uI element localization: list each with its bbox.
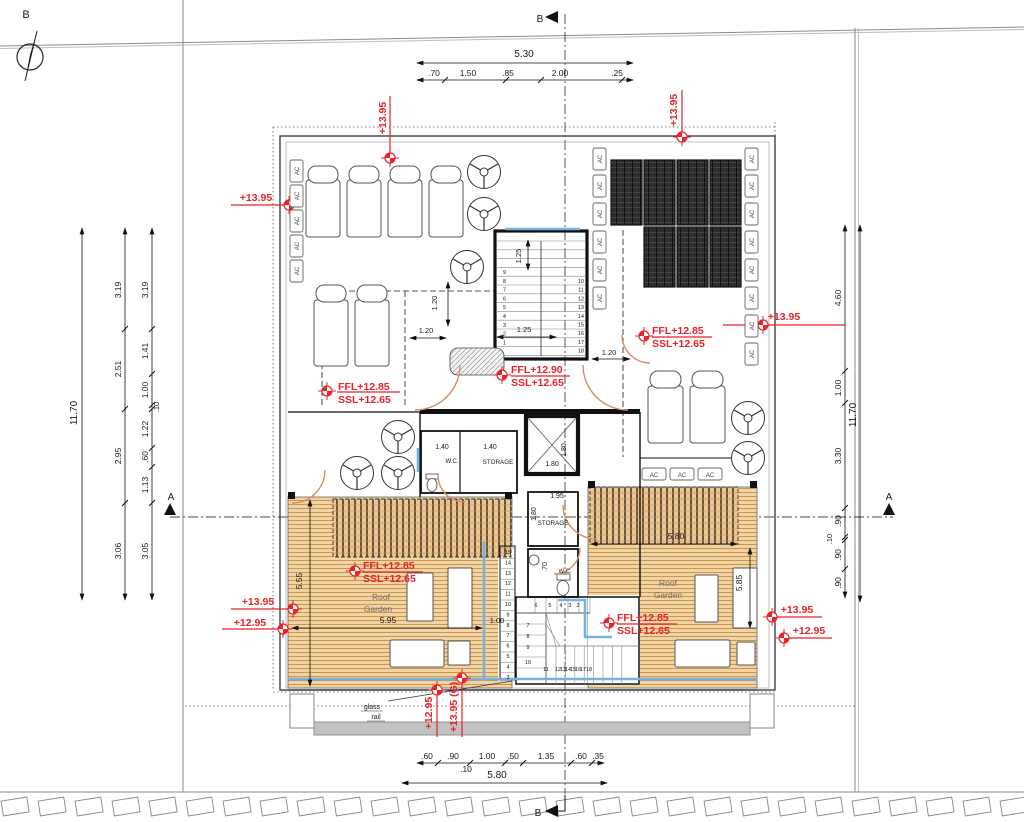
room-label: Roof (659, 578, 678, 588)
pavement-tile (260, 797, 288, 816)
dim-label: 5.55 (294, 572, 304, 589)
dim-label: 7 (507, 633, 510, 639)
dim-label: 1.25 (514, 249, 523, 264)
pavement-tile (38, 797, 66, 816)
dim-label: AC (750, 265, 756, 274)
room-label: Roof (372, 592, 391, 602)
level-marker-icon (775, 629, 793, 647)
level-annotation: SSL+12.65 (338, 394, 391, 406)
dim-label: 10 (505, 602, 511, 608)
lounger-pillow (692, 371, 723, 388)
dim-label: 12 (505, 581, 511, 587)
dim-label: AC (706, 473, 715, 479)
dim-label: 16 (578, 331, 584, 337)
level-annotation: +12.95 (793, 625, 826, 637)
dim-label: 3.05 (140, 542, 150, 559)
pavement-tile (482, 797, 510, 816)
dim-label: 5 (549, 603, 552, 609)
dim-label: AC (750, 349, 756, 358)
dim-label: 1.20 (430, 296, 439, 311)
pavement-tile (889, 797, 917, 816)
section-marker-label: A (886, 492, 893, 503)
level-annotation: +13.95 (668, 94, 680, 127)
side-table (737, 642, 755, 665)
dim-label: 1.25 (517, 325, 532, 334)
floor-plan-drawing: ACACACACACACACACACACACACACACACACACACACAC… (0, 0, 1024, 822)
level-marker-icon (318, 382, 336, 400)
dim-label: 10 (578, 279, 584, 285)
dim-label: AC (598, 181, 604, 190)
level-marker-icon (763, 608, 781, 626)
room-label: STORAGE (483, 459, 514, 466)
solar-panels (611, 160, 741, 287)
dim-label: 1.80 (545, 461, 559, 468)
pavement-tile (630, 797, 658, 816)
pavement-tile (741, 797, 769, 816)
north-label: B (22, 9, 29, 21)
dim-label: 1.13 (140, 476, 150, 493)
dim-label: 3 (569, 603, 572, 609)
dim-label: 3 (503, 323, 506, 329)
stair-tread (546, 624, 560, 646)
dim-label: 6 (507, 644, 510, 650)
garden-cabinet (448, 568, 472, 628)
garden-sofa (675, 640, 730, 667)
pavement-tile (556, 797, 584, 816)
pavement-tile (815, 797, 843, 816)
dim-label: 12 (578, 296, 584, 302)
dim-label: 2.95 (113, 447, 123, 464)
dim-label: .10 (825, 534, 834, 544)
lounger-pillow (308, 166, 338, 183)
glass-rail-label: glass (364, 704, 381, 711)
dim-label: 3.06 (113, 542, 123, 559)
dim-label: AC (650, 473, 659, 479)
level-annotation: FFL+12.90 (511, 364, 563, 376)
dim-label: 18 (586, 667, 592, 673)
level-annotation: +13.95 (377, 102, 389, 135)
lounger-pillow (316, 285, 346, 302)
bench-seat (450, 348, 504, 375)
sun-lounger (388, 180, 422, 237)
dim-label: .90 (833, 577, 843, 589)
section-marker-label: B (537, 14, 544, 25)
level-annotation: SSL+12.65 (652, 338, 705, 350)
dim-label: AC (598, 293, 604, 302)
level-annotation: FFL+12.85 (363, 560, 415, 572)
dim-label: 1.80 (531, 507, 538, 521)
room-label: Garden (654, 590, 683, 600)
pavement-tile (334, 797, 362, 816)
dim-label: AC (295, 241, 301, 250)
dim-label: 14 (578, 314, 584, 320)
lower-floor-band (290, 694, 774, 735)
dim-label: 2.00 (552, 68, 569, 78)
sun-lounger (347, 180, 381, 237)
room-label: Garden (364, 604, 393, 614)
dim-label: 4 (507, 664, 510, 670)
garden-sofa (390, 640, 444, 667)
pavement-tile (297, 797, 325, 816)
level-annotation: +13.95 (242, 596, 275, 608)
dim-label: AC (750, 237, 756, 246)
level-annotation: +13.95 (768, 311, 801, 323)
dim-label: 1 (503, 340, 506, 346)
dim-label: 1.00 (140, 381, 150, 398)
dim-label: AC (598, 209, 604, 218)
dim-label: 2.51 (113, 360, 123, 377)
garden-table (695, 575, 718, 622)
level-marker-icon (673, 128, 691, 146)
pavement-tile (704, 797, 732, 816)
lounger-pillow (650, 371, 681, 388)
toilet-icon (557, 581, 569, 596)
room-label: W.C. (446, 459, 459, 465)
dim-label: 10 (525, 660, 531, 666)
dim-label: 11.70 (69, 400, 80, 425)
dim-label: 3.30 (833, 447, 843, 464)
dim-label: 3 (507, 675, 510, 681)
dim-label: 11 (578, 288, 584, 294)
dim-label: 2 (577, 603, 580, 609)
lounger-pillow (390, 166, 420, 183)
dim-label: 3.19 (113, 281, 123, 298)
dim-label: 7 (503, 288, 506, 294)
dim-label: 1.00 (479, 751, 496, 761)
dim-label: .90 (833, 549, 843, 561)
section-a-right-arrow-icon (883, 503, 895, 515)
floor-plan-page: ACACACACACACACACACACACACACACACACACACACAC… (0, 0, 1024, 822)
level-annotation: FFL+12.85 (652, 325, 704, 337)
pavement-tile (408, 797, 436, 816)
level-annotation: +12.95 (423, 697, 435, 730)
pavement-tile (223, 797, 251, 816)
dim-label: 1.50 (460, 68, 477, 78)
dim-label: 17 (578, 340, 584, 346)
dim-label: AC (598, 154, 604, 163)
dim-label: .85 (502, 68, 514, 78)
dim-label: 9 (503, 270, 506, 276)
level-annotation: +13.95 (240, 192, 273, 204)
dim-label: AC (295, 266, 301, 275)
dim-label: 1.40 (483, 444, 497, 451)
dim-label: 5.80 (487, 770, 507, 781)
dim-label: .90 (833, 515, 843, 527)
dim-label: 8 (503, 279, 506, 285)
dim-label: 1.95 (550, 493, 564, 500)
dim-label: AC (750, 209, 756, 218)
dim-label: AC (295, 191, 301, 200)
level-annotation: FFL+12.85 (617, 612, 669, 624)
level-annotation: FFL+12.85 (338, 381, 390, 393)
lounger-pillow (349, 166, 379, 183)
dim-label: 13 (505, 571, 511, 577)
dim-label: AC (598, 237, 604, 246)
pavement-tile (371, 797, 399, 816)
pavement-tile (1000, 797, 1024, 816)
dim-label: 6 (503, 296, 506, 302)
section-marker-label: B (535, 808, 542, 819)
room-label: W.C. (559, 569, 572, 575)
section-b-bottom-arrow-icon (545, 805, 558, 817)
dim-label: AC (750, 154, 756, 163)
pavement-tile (963, 797, 991, 816)
sun-lounger (355, 300, 389, 366)
level-marker-icon (635, 327, 653, 345)
dim-label: 9 (507, 612, 510, 618)
sun-lounger (648, 386, 683, 443)
side-table (448, 641, 470, 665)
dim-label: .10 (460, 764, 472, 774)
dim-label: 1.20 (419, 326, 434, 335)
dim-label: 3.19 (140, 281, 150, 298)
dim-label: .25 (611, 68, 623, 78)
dim-label: .50 (507, 751, 519, 761)
dim-label: 5.85 (734, 574, 744, 591)
dim-label: 4 (560, 603, 563, 609)
pavement-tile (778, 797, 806, 816)
room-label: STORAGE (538, 520, 569, 527)
sun-lounger (306, 180, 340, 237)
dim-label: 8 (507, 623, 510, 629)
dim-label: 1.41 (140, 342, 150, 359)
dim-label: 7 (527, 623, 530, 629)
sun-lounger (690, 386, 725, 443)
pavement-band (1, 797, 1024, 816)
level-annotation: +13.95 (G) (448, 682, 460, 733)
north-arrow-icon (17, 31, 43, 81)
section-a-left-arrow-icon (164, 503, 176, 515)
level-annotation: SSL+12.65 (363, 573, 416, 585)
pavement-tile (852, 797, 880, 816)
dim-label: 11 (505, 592, 511, 598)
dim-label: 5 (503, 305, 506, 311)
dim-label: AC (598, 265, 604, 274)
sink-icon (529, 555, 539, 565)
dim-label: 18 (578, 349, 584, 355)
dim-label: .60 (140, 451, 150, 463)
dim-label: 14 (505, 560, 511, 566)
pavement-tile (667, 797, 695, 816)
dim-label: 13 (578, 305, 584, 311)
dim-label: 6 (535, 603, 538, 609)
dim-label: .60 (575, 751, 587, 761)
dim-label: 1.00 (490, 616, 505, 625)
dim-label: 4.60 (833, 289, 843, 306)
dim-label: .90 (447, 751, 459, 761)
dim-label: AC (750, 321, 756, 330)
pavement-tile (186, 797, 214, 816)
level-annotation: SSL+12.65 (617, 625, 670, 637)
dim-label: 9 (527, 645, 530, 651)
pavement-tile (149, 797, 177, 816)
dim-label: AC (295, 216, 301, 225)
glass-rail-label: rail (371, 714, 381, 721)
dim-label: 5.95 (380, 615, 397, 625)
pavement-tile (112, 797, 140, 816)
dim-label: 8 (527, 634, 530, 640)
dim-label: 1.80 (561, 443, 568, 457)
pavement-tile (445, 797, 473, 816)
dim-label: 15 (578, 323, 584, 329)
pavement-tile (519, 797, 547, 816)
sun-lounger (429, 180, 463, 237)
dim-label: .70 (428, 68, 440, 78)
dim-label: 11 (543, 667, 549, 673)
sun-lounger (314, 300, 348, 366)
dim-label: 5.30 (514, 49, 534, 60)
dim-label: 1.40 (435, 444, 449, 451)
level-annotation: +13.95 (781, 604, 814, 616)
dim-label: .60 (421, 751, 433, 761)
dim-label: 4 (503, 314, 506, 320)
pavement-tile (1, 797, 29, 816)
toilet-icon (427, 479, 437, 492)
dim-label: .10 (152, 402, 161, 412)
dim-label: 1.20 (602, 348, 617, 357)
dim-label: AC (678, 473, 687, 479)
level-annotation: SSL+12.65 (511, 377, 564, 389)
section-b-top-arrow-icon (545, 11, 558, 23)
stair-tread (546, 613, 556, 646)
dim-label: .35 (592, 751, 604, 761)
level-annotation: +12.95 (234, 617, 267, 629)
dim-label: 5 (507, 654, 510, 660)
pavement-tile (75, 797, 103, 816)
section-marker-label: A (168, 492, 175, 503)
dim-label: AC (295, 166, 301, 175)
lounger-pillow (431, 166, 461, 183)
dim-label: .70 (542, 562, 549, 572)
pavement-tile (926, 797, 954, 816)
dim-label: AC (750, 181, 756, 190)
dim-label: 1.35 (538, 751, 555, 761)
dim-label: 5.80 (668, 531, 685, 541)
dim-label: 1.00 (833, 379, 843, 396)
dim-label: 2 (503, 332, 506, 338)
pergola-right (590, 487, 738, 544)
dim-label: 1.22 (140, 420, 150, 437)
dim-label: 15 (505, 550, 511, 556)
level-marker-icon (381, 149, 399, 167)
dim-label: 11.70 (848, 402, 859, 427)
pavement-tile (593, 797, 621, 816)
lounger-pillow (357, 285, 387, 302)
dim-label: AC (750, 293, 756, 302)
